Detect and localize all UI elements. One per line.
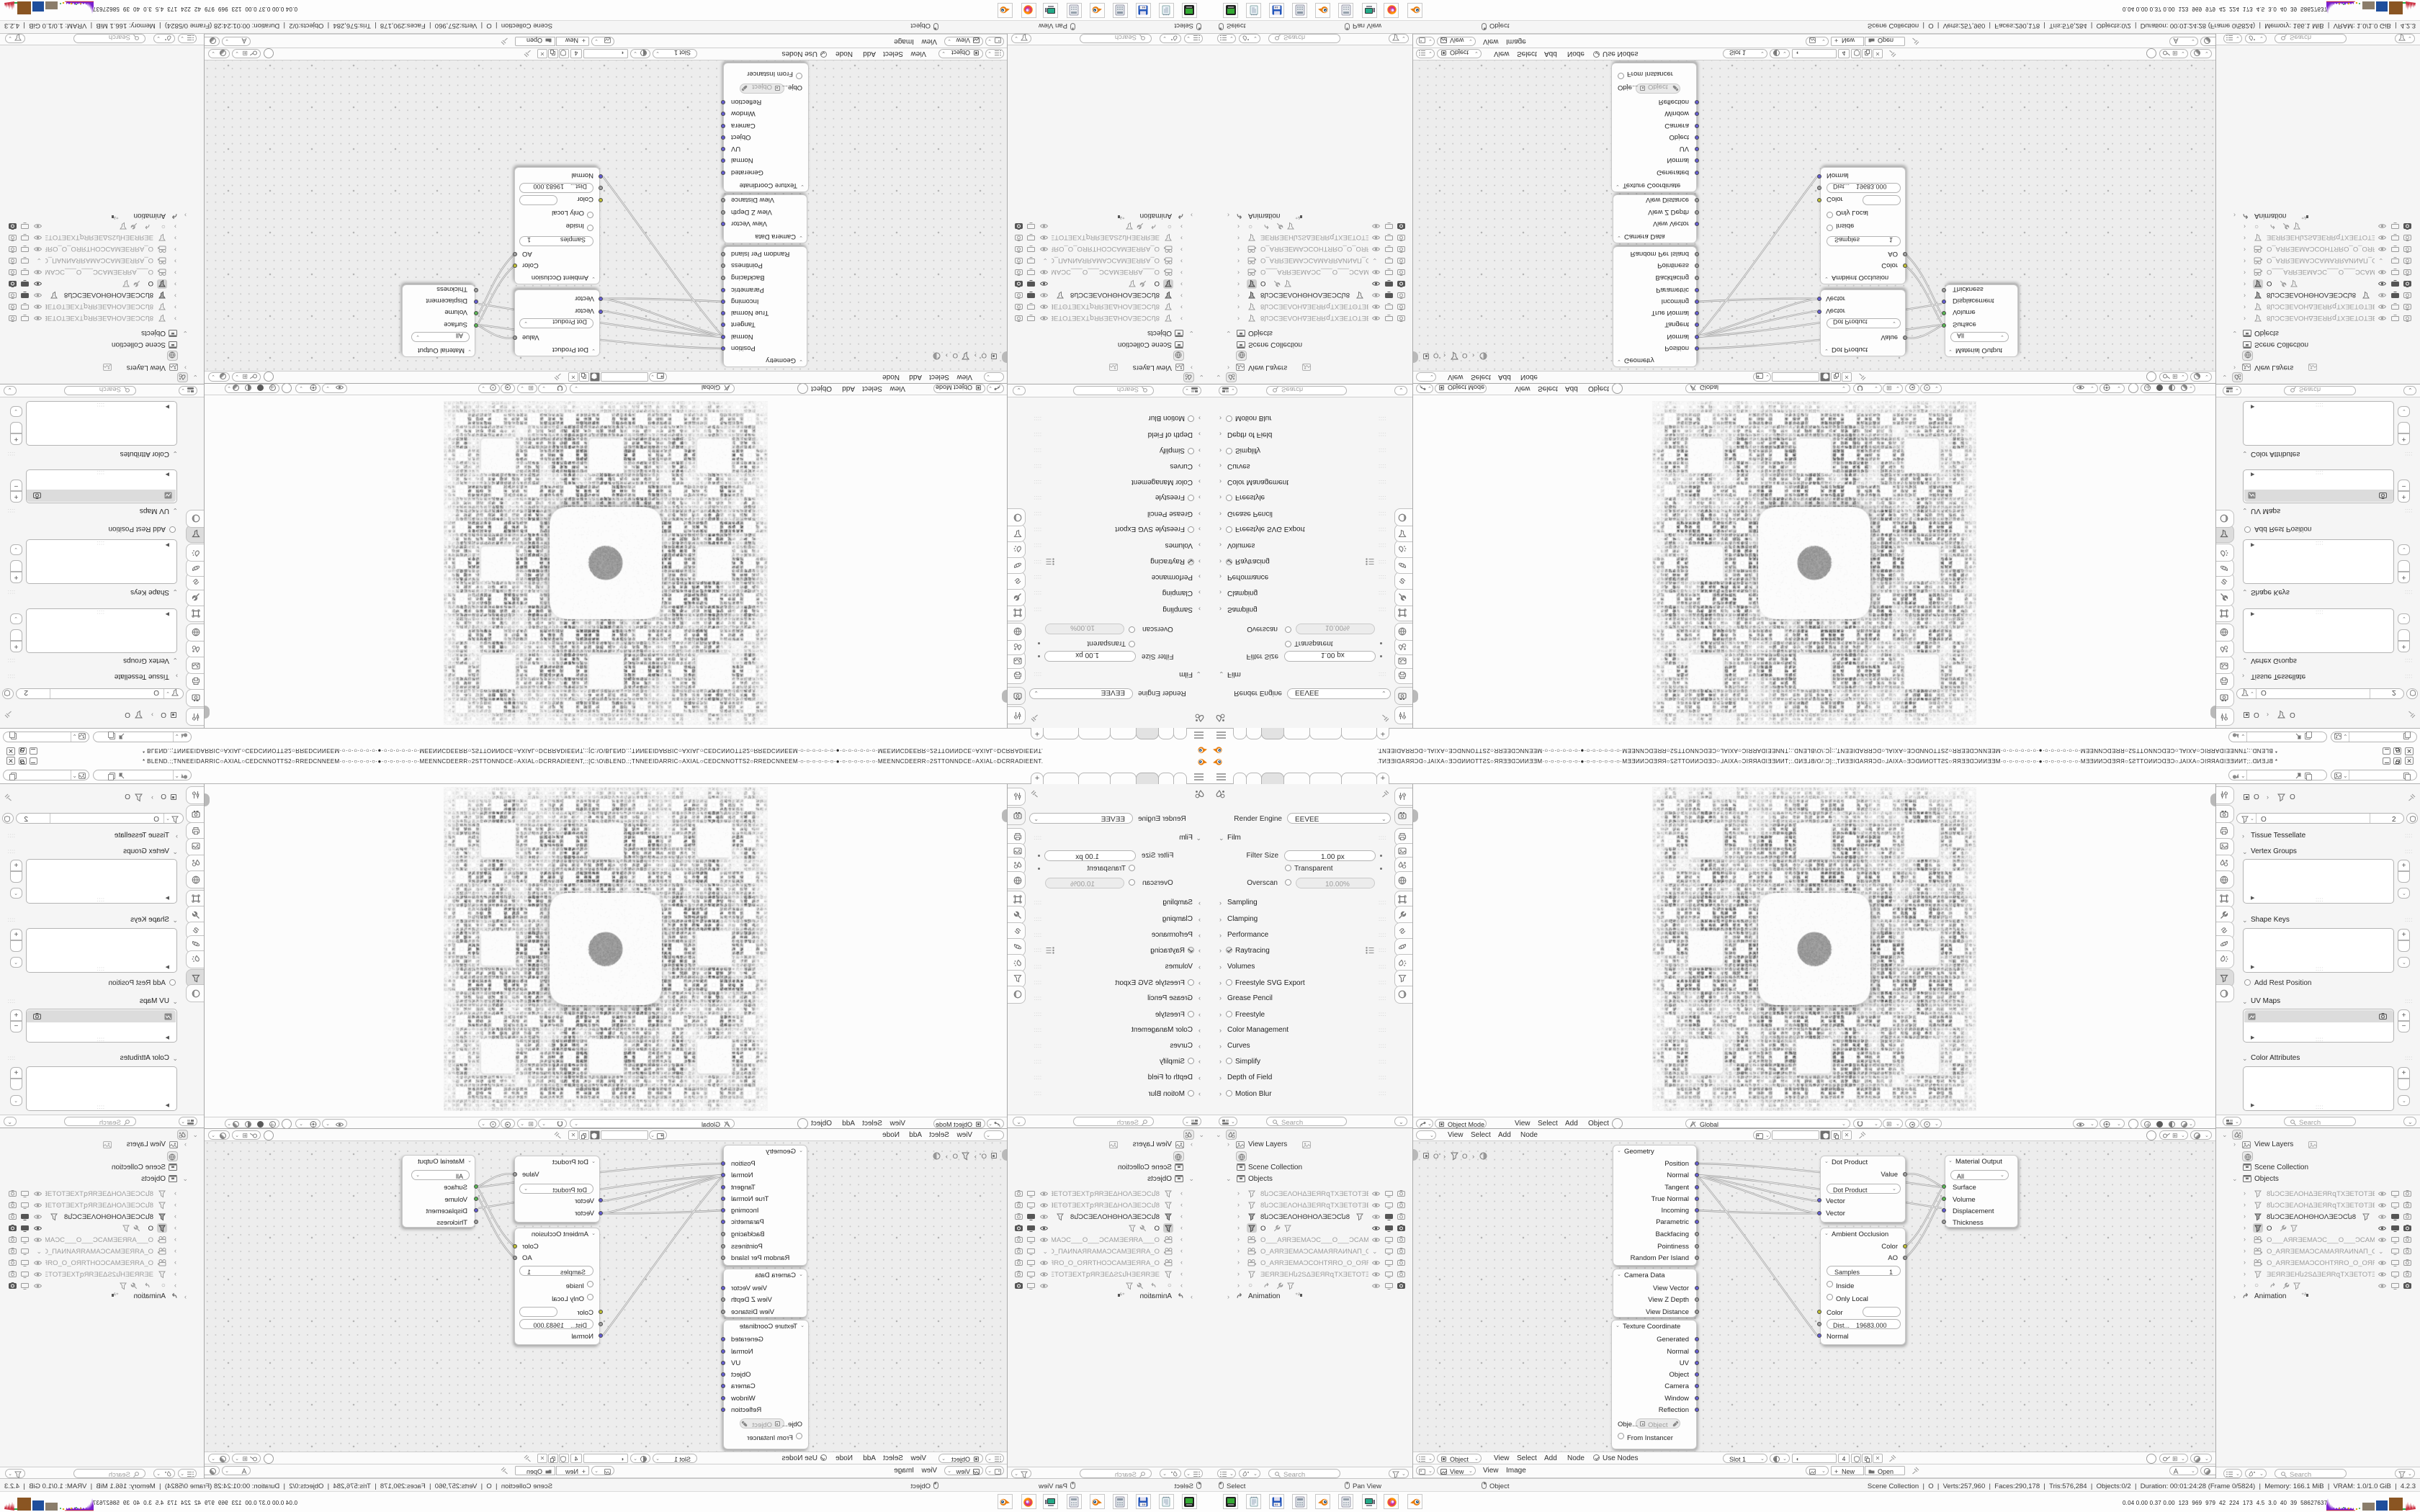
svg-text:64: 64 xyxy=(1142,6,1145,9)
svg-text:64: 64 xyxy=(1275,1503,1278,1506)
svg-text:64: 64 xyxy=(1142,1503,1145,1506)
svg-text:64: 64 xyxy=(1275,6,1278,9)
